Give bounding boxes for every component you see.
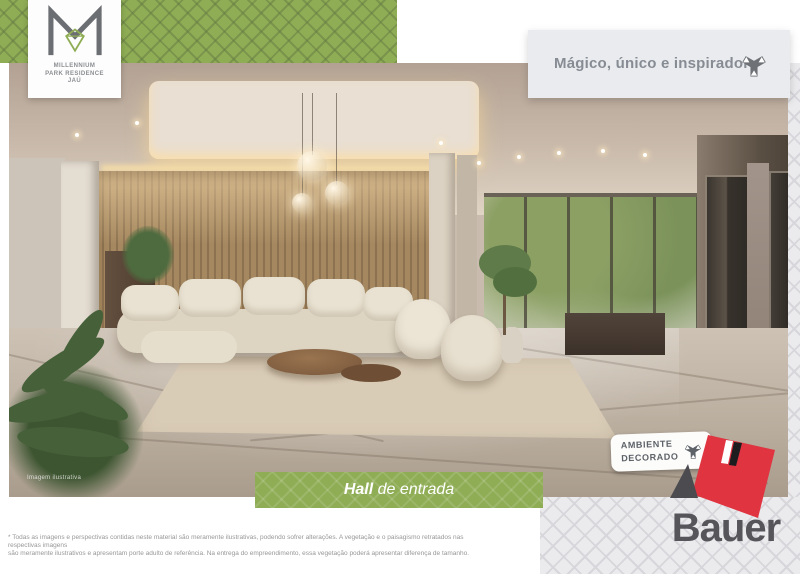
brand-name-line1: MILLENNIUM bbox=[28, 63, 121, 71]
brand-logo-card: MILLENNIUM PARK RESIDENCE JAÚ bbox=[28, 0, 121, 98]
ceiling-downlight bbox=[557, 151, 561, 155]
sofa-cushion bbox=[243, 277, 305, 315]
flyer-page: MILLENNIUM PARK RESIDENCE JAÚ Mágico, ún… bbox=[0, 0, 800, 574]
brand-name-line2: PARK RESIDENCE bbox=[28, 71, 121, 79]
photo-watermark: Imagem ilustrativa bbox=[27, 475, 81, 481]
legal-disclaimer: * Todas as imagens e perspectivas contid… bbox=[8, 534, 478, 558]
ceiling-downlight bbox=[135, 121, 139, 125]
indoor-tree-foliage bbox=[493, 267, 537, 297]
sofa-cushion bbox=[121, 285, 179, 321]
brand-name-line3: JAÚ bbox=[28, 78, 121, 86]
disclaimer-line1: * Todas as imagens e perspectivas contid… bbox=[8, 534, 478, 550]
pendant-light-globe bbox=[325, 181, 349, 205]
coffee-table-small bbox=[341, 364, 401, 382]
lounge-chair-right bbox=[441, 315, 503, 381]
bauer-cube-icon bbox=[738, 49, 770, 81]
ceiling-downlight bbox=[439, 141, 443, 145]
tagline-text: Mágico, único e inspirador bbox=[554, 30, 749, 98]
caption-rest: de entrada bbox=[373, 481, 454, 498]
sofa-plant bbox=[122, 226, 174, 284]
ceiling-downlight bbox=[517, 155, 521, 159]
disclaimer-line2: são meramente ilustrativos e apresentam … bbox=[8, 550, 478, 558]
pendant-light-globe bbox=[292, 193, 312, 213]
ceiling-downlight bbox=[601, 149, 605, 153]
ceiling-downlight bbox=[75, 133, 79, 137]
sofa-cushion bbox=[179, 279, 241, 317]
caption-highlight: Hall bbox=[344, 481, 373, 498]
sofa-cushion bbox=[307, 279, 365, 317]
window-sideboard bbox=[565, 313, 665, 355]
sofa-chaise bbox=[141, 331, 237, 363]
lobby-ceiling-soffit bbox=[149, 81, 479, 159]
builder-name: Bauer bbox=[658, 506, 794, 551]
ceiling-downlight bbox=[643, 153, 647, 157]
caption-text: Hall de entrada bbox=[255, 472, 543, 508]
pendant-cord bbox=[336, 93, 337, 185]
tagline-card: Mágico, único e inspirador bbox=[528, 30, 790, 98]
pendant-cord bbox=[302, 93, 303, 197]
ceiling-downlight bbox=[477, 161, 481, 165]
pendant-cord bbox=[312, 93, 313, 155]
caption-banner: Hall de entrada bbox=[255, 472, 543, 508]
indoor-tree-trunk bbox=[503, 291, 506, 335]
pendant-light-globe bbox=[297, 151, 327, 181]
millennium-monogram-icon bbox=[42, 4, 108, 58]
